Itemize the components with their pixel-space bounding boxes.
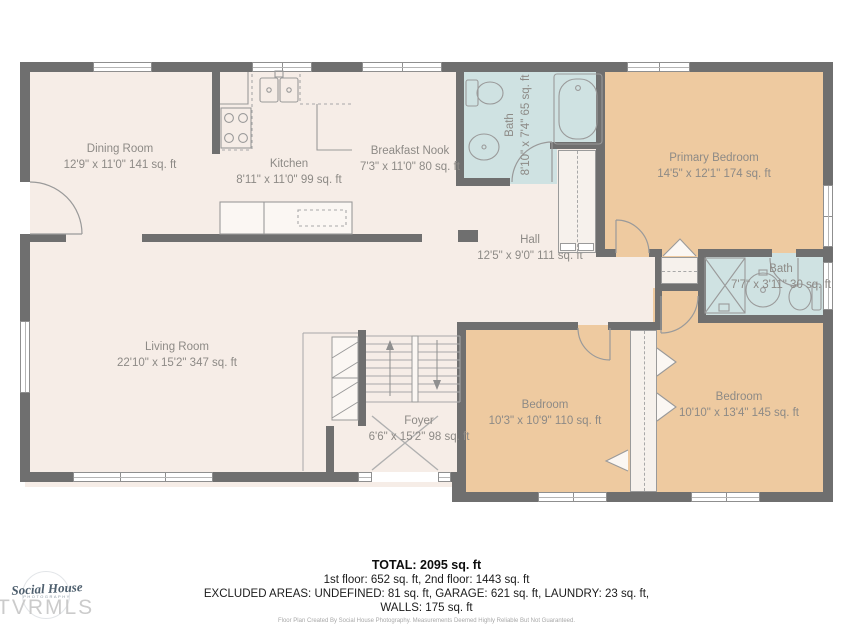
window-living-left: [20, 321, 30, 393]
room-dims: 22'10" x 15'2" 347 sq. ft: [117, 355, 237, 371]
label-breakfast-nook: Breakfast Nook 7'3" x 11'0" 80 sq. ft: [360, 143, 460, 175]
label-bath-small: Bath 7'7" x 3'11" 30 sq. ft: [731, 261, 831, 293]
room-name: Bath: [731, 261, 831, 277]
mls-watermark: TVRMLS: [0, 596, 94, 620]
sidelight-left: [358, 472, 372, 482]
wall-hall-stub: [458, 230, 478, 242]
wall-foyer-bedroom1: [457, 322, 466, 492]
summary-credit: Floor Plan Created By Social House Photo…: [0, 618, 853, 624]
wall-dining-living-b: [142, 234, 422, 242]
room-name: Dining Room: [64, 141, 177, 157]
window-dining-top: [93, 62, 152, 72]
garage-door-opening: [20, 182, 30, 234]
room-name: Foyer: [369, 413, 470, 429]
sidelight-right: [438, 472, 451, 482]
logo-subtitle: PHOTOGRAPHY: [14, 594, 80, 599]
wall-dining-kitchen: [212, 72, 220, 154]
wall-hall-bedroom1-b: [608, 322, 658, 330]
window-primary-top: [627, 62, 690, 72]
summary-walls: WALLS: 175 sq. ft: [0, 602, 853, 614]
label-living-room: Living Room 22'10" x 15'2" 347 sq. ft: [117, 339, 237, 371]
wall-dining-living-a: [30, 234, 66, 242]
room-dims: 7'3" x 11'0" 80 sq. ft: [360, 159, 460, 175]
wall-stair: [358, 330, 366, 426]
hall-closet-dash: [577, 151, 578, 252]
hall-closet: [558, 150, 596, 253]
wall-hall-bedroom1-a: [462, 322, 578, 330]
hall-closet-door-right: [578, 243, 594, 251]
floor-plan-canvas: Dining Room 12'9" x 11'0" 141 sq. ft Kit…: [0, 0, 853, 640]
room-dims: 12'9" x 11'0" 141 sq. ft: [64, 157, 177, 173]
room-dims: 6'6" x 15'2" 98 sq. ft: [369, 429, 470, 445]
bedroom-closet-strip: [630, 330, 657, 492]
wall-exterior-bottom-right: [452, 492, 833, 502]
hall-closet-door-left: [560, 243, 576, 251]
label-bedroom-2: Bedroom 10'10" x 13'4" 145 sq. ft: [679, 389, 799, 421]
room-name: Primary Bedroom: [657, 150, 771, 166]
sliding-door-nook: [362, 62, 442, 72]
label-bath-upper: Bath 8'10" x 7'4" 65 sq. ft: [502, 75, 534, 176]
room-dims: 10'3" x 10'9" 110 sq. ft: [489, 413, 602, 429]
wall-primary-bottom-d: [796, 249, 823, 257]
summary-total: TOTAL: 2095 sq. ft: [0, 558, 853, 572]
room-name: Breakfast Nook: [360, 143, 460, 159]
primary-closet: [661, 257, 698, 284]
label-kitchen: Kitchen 8'11" x 11'0" 99 sq. ft: [236, 156, 341, 188]
wall-primary-bottom-c: [698, 249, 772, 257]
label-dining-room: Dining Room 12'9" x 11'0" 141 sq. ft: [64, 141, 177, 173]
room-dims: 8'11" x 11'0" 99 sq. ft: [236, 172, 341, 188]
wall-primary-closet-bottom: [655, 284, 703, 291]
room-name: Bedroom: [679, 389, 799, 405]
window-kitchen-top: [252, 62, 312, 72]
room-dims: 7'7" x 3'11" 30 sq. ft: [731, 277, 831, 293]
summary-floors: 1st floor: 652 sq. ft, 2nd floor: 1443 s…: [0, 574, 853, 586]
window-living-bottom: [73, 472, 213, 482]
wall-bath-upper-bottom: [462, 178, 510, 186]
window-bedroom2-bottom: [691, 492, 760, 502]
room-dims: 14'5" x 12'1" 174 sq. ft: [657, 166, 771, 182]
label-foyer: Foyer 6'6" x 15'2" 98 sq. ft: [369, 413, 470, 445]
label-bedroom-1: Bedroom 10'3" x 10'9" 110 sq. ft: [489, 397, 602, 429]
room-name: Bath: [502, 75, 518, 176]
room-name: Bedroom: [489, 397, 602, 413]
summary-excluded: EXCLUDED AREAS: UNDEFINED: 81 sq. ft, GA…: [0, 588, 853, 600]
room-name: Kitchen: [236, 156, 341, 172]
wall-bath-small-left: [698, 253, 706, 323]
room-dims: 8'10" x 7'4" 65 sq. ft: [518, 75, 534, 176]
front-door-opening: [372, 472, 438, 482]
room-dims: 10'10" x 13'4" 145 sq. ft: [679, 405, 799, 421]
wall-primary-bottom-a: [596, 249, 616, 257]
window-primary-right: [823, 185, 833, 247]
wall-exterior-left: [20, 62, 30, 482]
wall-foyer-left: [326, 426, 334, 472]
room-name: Living Room: [117, 339, 237, 355]
window-bedroom1-bottom: [538, 492, 607, 502]
wall-bath-small-bottom: [698, 315, 825, 323]
wall-bath-primary: [596, 62, 605, 257]
label-primary-bedroom: Primary Bedroom 14'5" x 12'1" 174 sq. ft: [657, 150, 771, 182]
